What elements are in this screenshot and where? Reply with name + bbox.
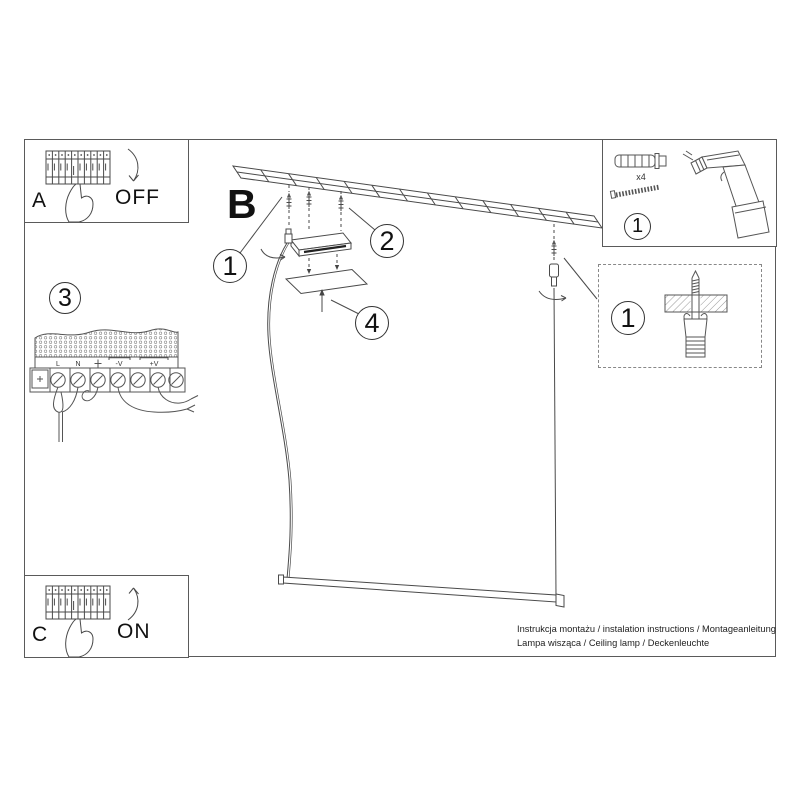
footer-line-2: Lampa wisząca / Ceiling lamp / Deckenleu…	[517, 637, 776, 651]
section-b-label: B	[227, 181, 257, 228]
power-on-label: ON	[117, 620, 151, 644]
footer-text: Instrukcja montażu / instalation instruc…	[517, 623, 776, 650]
panel-a-letter: A	[32, 189, 46, 213]
anchor-detail-box: 1	[598, 264, 762, 368]
lamp-bar-drawing	[279, 575, 565, 607]
canopy-cover-drawing	[286, 254, 367, 312]
psu-mesh-top	[35, 329, 178, 357]
pointing-hand-icon	[66, 184, 93, 222]
terminal-label-l: L	[56, 361, 60, 368]
suspension-wire-right	[550, 264, 559, 596]
pointing-hand-icon	[66, 619, 93, 657]
canopy-box-drawing	[285, 229, 351, 256]
arrow-down-icon	[128, 149, 139, 181]
panel-power-on: C ON	[24, 575, 189, 658]
power-off-label: OFF	[115, 186, 160, 210]
terminal-label-pos: +V	[150, 361, 159, 368]
detail-step-badge: 1	[611, 301, 645, 335]
breaker-off-drawing	[25, 140, 188, 222]
mounting-screw-icon	[610, 187, 660, 198]
breaker-on-drawing	[25, 576, 188, 657]
wire-gripper-icon	[684, 314, 707, 357]
drill-icon	[683, 151, 769, 238]
rotation-arrows	[261, 249, 566, 301]
toolbox-step-badge: 1	[624, 213, 651, 240]
power-cable-drawing	[268, 243, 293, 579]
wires-drawing	[53, 387, 198, 442]
instruction-sheet: A OFF	[0, 0, 800, 800]
wall-anchor-icon	[615, 154, 666, 169]
panel-c-letter: C	[32, 623, 47, 647]
callout-1-badge: 1	[213, 249, 247, 283]
callout-4-badge: 4	[355, 306, 389, 340]
breaker-panel-icon	[46, 151, 110, 184]
step3-number-badge: 3	[49, 282, 81, 314]
anchor-qty-label: x4	[636, 172, 646, 182]
ceiling-grid-drawing	[233, 166, 602, 228]
tools-box: x4 1	[602, 139, 777, 247]
breaker-panel-icon	[46, 586, 110, 619]
panel-power-off: A OFF	[24, 139, 189, 223]
footer-line-1: Instrukcja montażu / instalation instruc…	[517, 623, 776, 637]
callout-2-badge: 2	[370, 224, 404, 258]
power-supply-wiring-drawing: L N -V +V	[28, 322, 208, 447]
arrow-up-icon	[128, 588, 139, 620]
terminal-label-neg: -V	[116, 361, 123, 368]
terminal-label-n: N	[75, 361, 80, 368]
